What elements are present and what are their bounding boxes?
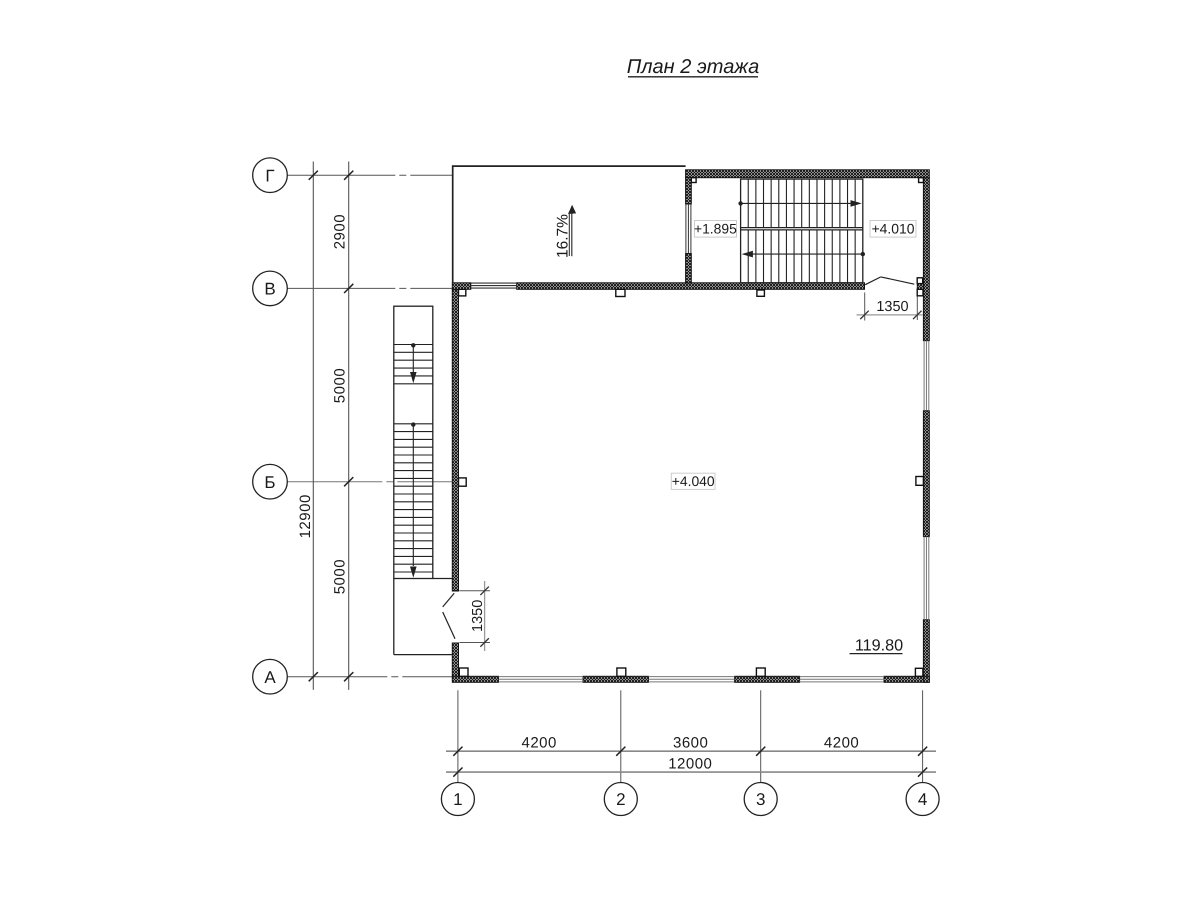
svg-text:3600: 3600 [673, 734, 708, 751]
svg-text:4: 4 [918, 790, 927, 809]
svg-text:А: А [264, 668, 276, 687]
svg-text:1350: 1350 [470, 600, 486, 632]
svg-text:1: 1 [453, 790, 462, 809]
svg-text:План 2 этажа: План 2 этажа [627, 56, 759, 78]
svg-text:16.7%: 16.7% [554, 214, 571, 258]
svg-text:Б: Б [264, 473, 275, 492]
svg-text:119.80: 119.80 [855, 636, 903, 654]
svg-text:2: 2 [616, 790, 625, 809]
svg-text:2900: 2900 [332, 214, 349, 249]
svg-text:1350: 1350 [876, 299, 908, 315]
svg-text:12000: 12000 [668, 755, 712, 772]
svg-text:+4.040: +4.040 [672, 473, 715, 489]
svg-text:12900: 12900 [297, 494, 314, 538]
svg-text:5000: 5000 [332, 368, 349, 403]
svg-text:4200: 4200 [824, 734, 859, 751]
svg-text:3: 3 [756, 790, 765, 809]
svg-text:+4.010: +4.010 [872, 221, 915, 237]
svg-text:4200: 4200 [522, 734, 557, 751]
svg-text:5000: 5000 [332, 559, 349, 594]
svg-text:Г: Г [265, 166, 274, 185]
svg-text:+1.895: +1.895 [694, 221, 737, 237]
svg-text:В: В [264, 280, 275, 299]
